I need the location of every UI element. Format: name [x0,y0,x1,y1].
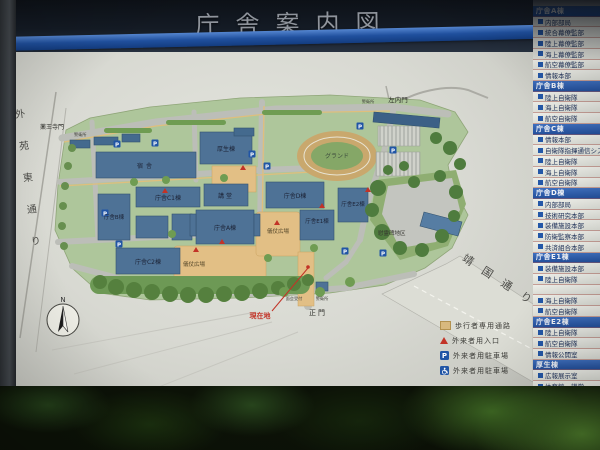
directory-label: 陸上自衛隊 [545,92,578,102]
label-guard-sanai: 警衛所 [362,98,375,105]
label-you-are-here: 現在地 [250,311,271,320]
directory-label: 装備施設本部 [545,220,584,230]
label-gate-main: 正門 [309,309,327,317]
label-gijo-plaza-main: 儀仗広場 [183,260,206,268]
directory-item: 装備施設本部 [533,263,600,274]
directory-item: 技術研究本部 [533,210,600,221]
parking-icon: P [391,148,395,154]
directory-label: 技術研究本部 [545,210,584,220]
directory-label: 情報公開室 [545,349,578,359]
building-color-square [538,62,543,67]
building-color-square [538,94,543,99]
parking-icon: P [440,351,449,360]
directory-item: 情報本部 [533,135,600,146]
building-color-square [538,351,543,356]
directory-item: 航空自衛隊 [533,113,600,124]
directory-label: 海上自衛隊 [545,295,578,305]
label-kosei: 厚生棟 [217,145,235,153]
directory-section-header: 庁舎E2棟 [533,317,600,328]
directory-label: 情報本部 [545,135,571,145]
directory-label: 内部部局 [545,17,571,27]
directory-section-header: 庁舎A棟 [533,6,600,17]
directory-label: 陸上自衛隊 [545,328,578,338]
directory-label: 航空自衛隊 [545,338,578,348]
directory-item: 共済組合本部 [533,242,600,253]
legend-label: 歩行者専用通路 [455,321,511,331]
compass-north-label: N [60,296,65,304]
building-color-square [538,330,543,335]
directory-section-header: 庁舎B棟 [533,81,600,92]
building-color-square [538,116,543,121]
directory-item: 防衛監察本部 [533,231,600,242]
directory-item: 自衛隊指揮通信システム隊 [533,145,600,156]
directory-label: 陸上自衛隊 [545,156,578,166]
foreground-foliage [0,386,600,450]
building-color-square [538,180,543,185]
building-directory: 庁舎A棟内部部局統合幕僚監部陸上幕僚監部海上幕僚監部航空幕僚監部情報本部庁舎B棟… [533,0,600,392]
building-color-square [538,41,543,46]
label-c2: 庁舎C2棟 [135,258,161,266]
directory-label: 内部部局 [545,199,571,209]
label-c1: 庁舎C1棟 [155,194,181,202]
directory-label: 防衛監察本部 [545,231,584,241]
directory-item: 陸上自衛隊 [533,156,600,167]
legend-row-parking: P 外来者用駐車場 [440,348,532,363]
pedestrian-path-icon [440,321,451,330]
building-color-square [538,298,543,303]
directory-label: 庁舎C棟 [536,124,564,134]
parking-icon: P [250,152,254,158]
building-color-square [538,223,543,228]
legend-label: 外来者用入口 [452,336,500,346]
directory-label: 共済組合本部 [545,242,584,252]
directory-label: 庁舎E1棟 [536,253,569,263]
building-color-square [538,73,543,78]
directory-section-header: 庁舎D棟 [533,188,600,199]
building-color-square [538,51,543,56]
building-color-square [538,169,543,174]
directory-item: 内部部局 [533,199,600,210]
building-color-square [538,266,543,271]
directory-label: 情報本部 [545,70,571,80]
building-color-square [538,105,543,110]
directory-label: 自衛隊指揮通信システム隊 [545,145,600,155]
wheelchair-icon [440,366,449,375]
directory-item: 広報展示室 [533,370,600,381]
building-e1 [300,210,334,240]
parking-icon: P [358,124,362,130]
label-gate-yakuoji: 薬王寺門 [40,123,64,131]
legend-row-accessible-parking: 外来者用駐車場 [440,363,532,378]
building-color-square [538,308,543,313]
directory-label: 航空自衛隊 [545,113,578,123]
parking-icon: P [343,249,347,255]
directory-label: 庁舎A棟 [536,6,564,16]
parking-icon: P [117,242,121,248]
directory-label: 陸上幕僚監部 [545,38,584,48]
signboard-photo: 庁舎案内図 [0,0,600,450]
building-color-square [538,201,543,206]
legend-row-entrance: 外来者用入口 [440,333,532,348]
label-kodo: 講堂 [218,192,234,200]
building-color-square [538,158,543,163]
sign-left-edge [0,0,16,450]
directory-item: 内部部局 [533,17,600,28]
directory-item: 海上自衛隊 [533,102,600,113]
directory-label: 庁舎D棟 [536,188,565,198]
directory-item: 陸上幕僚監部 [533,38,600,49]
building-color-square [538,148,543,153]
label-b: 庁舎B棟 [104,213,125,221]
parking-icon: P [381,251,385,257]
directory-label: 厚生棟 [536,360,559,370]
building-color-square [538,30,543,35]
directory-label: 海上幕僚監部 [545,49,584,59]
directory-label: 海上自衛隊 [545,102,578,112]
directory-label: 航空幕僚監部 [545,60,584,70]
directory-label: 航空自衛隊 [545,306,578,316]
entrance-triangle-icon [440,337,448,344]
directory-item: 海上自衛隊 [533,167,600,178]
map-board: P P P P P P P P P P [16,52,533,392]
label-d: 庁舎D棟 [284,192,307,200]
legend-row-path: 歩行者専用通路 [440,318,532,333]
directory-item: 航空自衛隊 [533,178,600,189]
map-legend: 歩行者専用通路 外来者用入口 P 外来者用駐車場 外来者用駐車場 [440,318,532,378]
directory-label: 広報展示室 [545,370,578,380]
directory-item [533,285,600,296]
label-reception: 面会受付 [286,295,303,302]
directory-label: 海上自衛隊 [545,167,578,177]
directory-item: 航空自衛隊 [533,306,600,317]
label-memorial: 慰霊碑地区 [378,229,406,237]
label-guard-yakuoji: 警衛所 [74,131,87,138]
directory-item: 航空自衛隊 [533,338,600,349]
building-color-square [538,373,543,378]
label-ground: グランド [325,152,349,160]
parking-icon: P [153,141,157,147]
directory-item: 陸上自衛隊 [533,274,600,285]
parking-icon: P [115,142,119,148]
directory-label: 統合幕僚監部 [545,27,584,37]
legend-label: 外来者用駐車場 [453,366,509,376]
building-color-square [538,19,543,24]
directory-item: 海上幕僚監部 [533,49,600,60]
directory-section-header: 庁舎E1棟 [533,253,600,264]
directory-item: 情報本部 [533,70,600,81]
building-color-square [538,233,543,238]
label-e2: 庁舎E2棟 [341,200,365,208]
legend-label: 外来者用駐車場 [453,351,509,361]
directory-item: 海上自衛隊 [533,295,600,306]
building-color-square [538,244,543,249]
parking-icon: P [265,164,269,170]
label-guard-main: 警衛所 [316,295,329,302]
directory-label: 庁舎B棟 [536,81,564,91]
directory-item: 統合幕僚監部 [533,27,600,38]
building-color-square [538,212,543,217]
directory-item: 装備施設本部 [533,220,600,231]
directory-label: 陸上自衛隊 [545,274,578,284]
building-color-square [538,341,543,346]
label-gijo-plaza-east: 儀仗広場 [267,227,290,235]
directory-label: 庁舎E2棟 [536,317,569,327]
label-a: 庁舎A棟 [214,224,236,232]
label-e1: 庁舎E1棟 [305,217,329,225]
directory-item: 情報公開室 [533,349,600,360]
directory-item: 陸上自衛隊 [533,328,600,339]
directory-section-header: 庁舎C棟 [533,124,600,135]
label-gate-sanai: 左内門 [388,95,408,104]
directory-item: 航空幕僚監部 [533,60,600,71]
directory-section-header: 厚生棟 [533,360,600,371]
directory-item: 陸上自衛隊 [533,92,600,103]
label-shukusha: 宿舎 [137,162,155,170]
directory-label: 装備施設本部 [545,263,584,273]
directory-label: 航空自衛隊 [545,178,578,188]
building-color-square [538,276,543,281]
building-color-square [538,137,543,142]
